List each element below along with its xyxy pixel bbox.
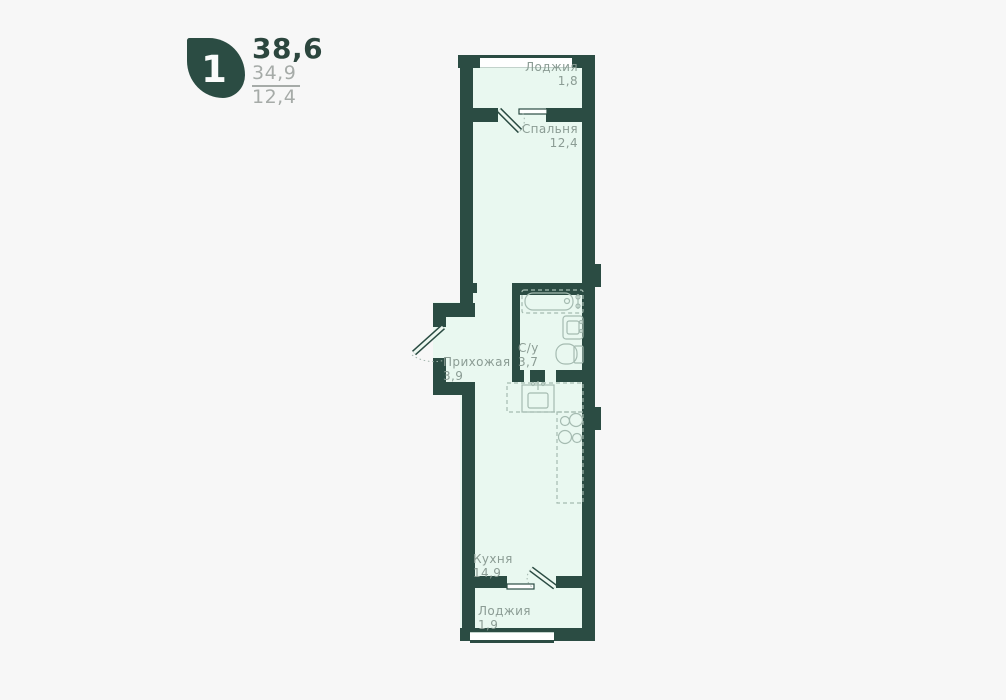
floorplan-page: 1 38,6 34,9 12,4 — [0, 0, 1006, 700]
room-label-bedroom: Спальня 12,4 — [522, 122, 578, 150]
room-name: Кухня — [473, 552, 513, 566]
kitchen-counter — [507, 383, 583, 503]
door-entry — [412, 327, 445, 362]
room-area: 3,7 — [518, 355, 539, 369]
toilet — [556, 344, 583, 364]
room-label-loggia-top: Лоджия 1,8 — [525, 60, 578, 88]
room-label-kitchen: Кухня 14,9 — [473, 552, 513, 580]
room-name: Лоджия — [525, 60, 578, 74]
total-area-value: 38,6 — [252, 32, 323, 65]
room-label-loggia-bottom: Лоджия 1,9 — [478, 604, 531, 632]
room-area: 3,9 — [443, 369, 510, 383]
room-name: С/у — [518, 341, 539, 355]
room-name: Лоджия — [478, 604, 531, 618]
room-name: Прихожая — [443, 355, 510, 369]
tertiary-area-value: 12,4 — [252, 86, 296, 108]
secondary-area-value: 34,9 — [252, 62, 300, 87]
room-name: Спальня — [522, 122, 578, 136]
room-area: 1,8 — [525, 74, 578, 88]
room-area: 12,4 — [522, 136, 578, 150]
bathtub — [522, 290, 583, 313]
window-bedroom-loggia — [519, 109, 547, 114]
room-label-hallway: Прихожая 3,9 — [443, 355, 510, 383]
stove — [559, 414, 583, 444]
window-kitchen-loggia — [507, 584, 534, 589]
room-label-bathroom: С/у 3,7 — [518, 341, 539, 369]
kitchen-sink — [522, 381, 554, 412]
plan-overlay — [0, 0, 1006, 700]
room-area: 14,9 — [473, 566, 513, 580]
washbasin — [563, 316, 583, 339]
room-area: 1,9 — [478, 618, 531, 632]
rooms-count: 1 — [201, 48, 227, 91]
